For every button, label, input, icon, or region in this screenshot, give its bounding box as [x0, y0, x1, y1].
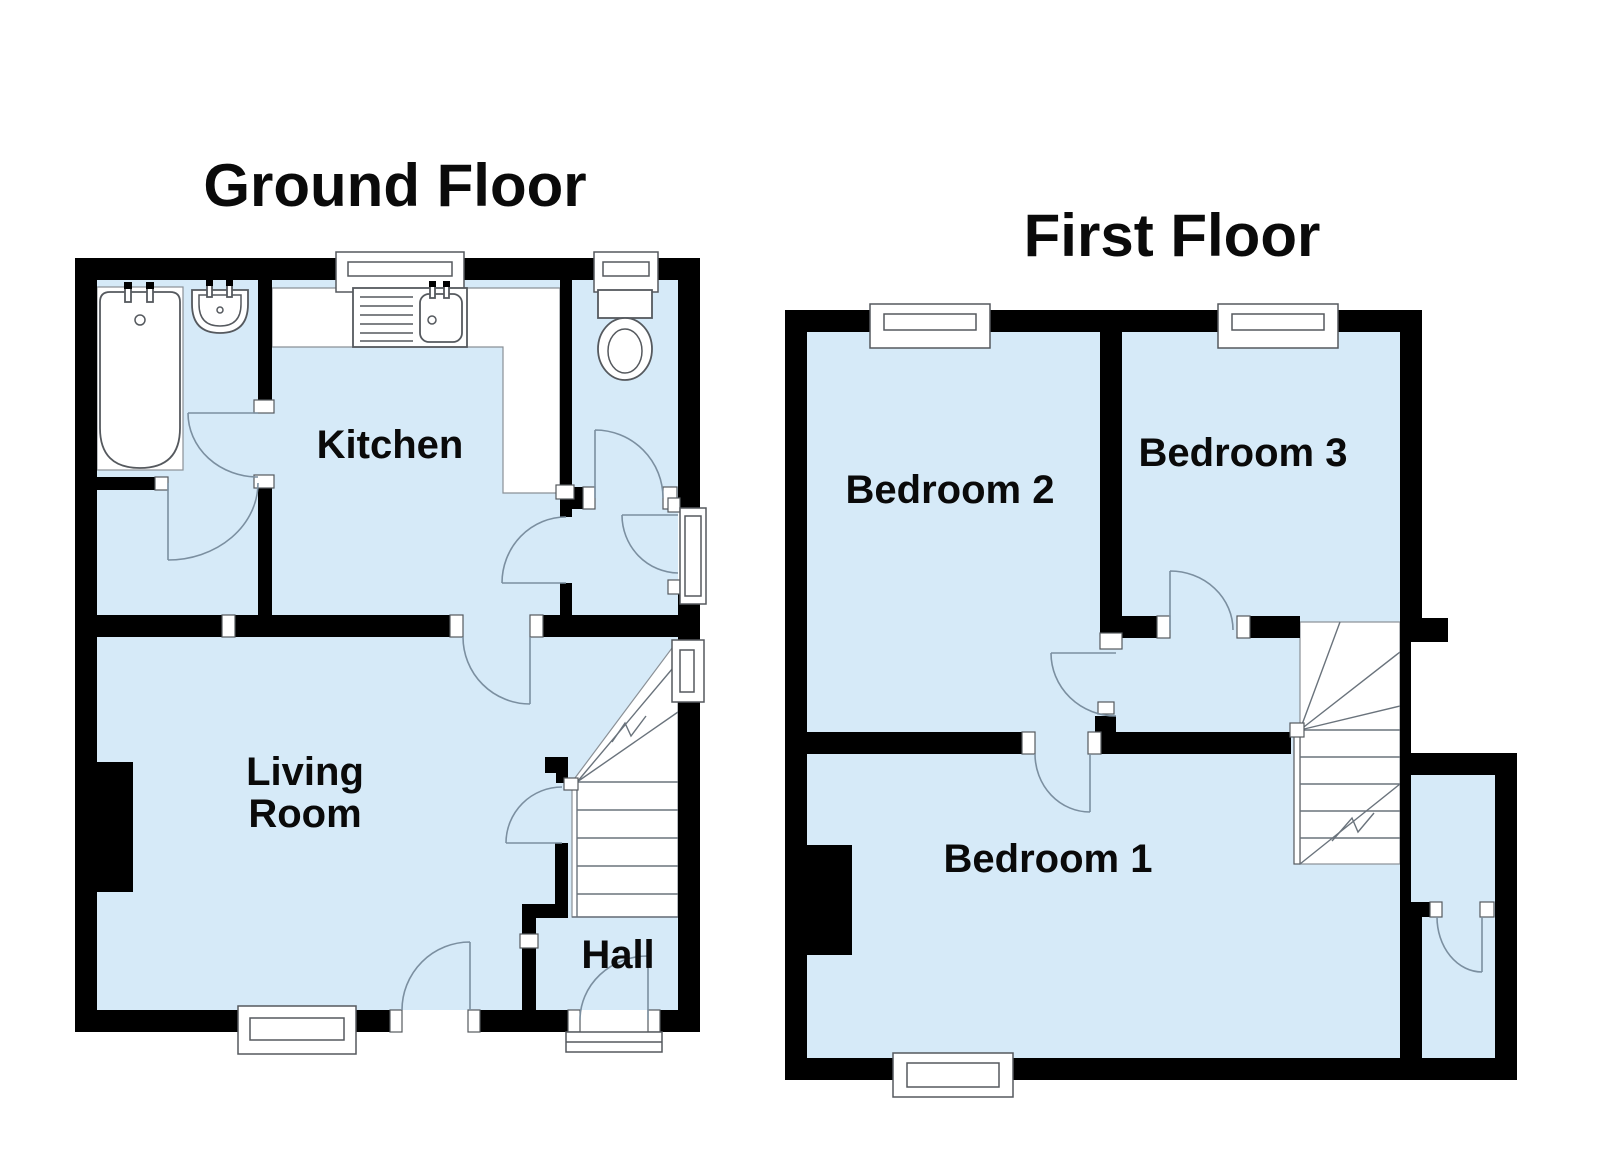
wc-window	[594, 252, 658, 292]
front-door-frame	[680, 508, 706, 604]
floorplan-svg: Ground Floor Kitchen Living Room Hall	[0, 0, 1600, 1163]
bedroom3-label: Bedroom 3	[1139, 431, 1348, 475]
living-room-label-line2: Room	[248, 792, 361, 836]
bedroom1-window	[893, 1053, 1013, 1097]
ground-floor-plan: Ground Floor Kitchen Living Room Hall	[75, 152, 706, 1054]
kitchen-sink-icon	[353, 281, 467, 347]
living-room-window	[238, 1006, 356, 1054]
hall-door-opening	[580, 1010, 648, 1032]
chimney-breast	[96, 762, 133, 892]
hall-label: Hall	[581, 933, 654, 977]
first-floor-title: First Floor	[1024, 202, 1321, 269]
bedroom1-label: Bedroom 1	[944, 837, 1153, 881]
back-door-opening	[402, 1010, 468, 1032]
bedroom2-label: Bedroom 2	[846, 468, 1055, 512]
hall-side-window	[672, 640, 704, 702]
bedroom3-window	[1218, 304, 1338, 348]
living-room-label-line1: Living	[246, 750, 364, 794]
chimney-breast	[806, 845, 852, 955]
bath-icon	[100, 282, 180, 468]
toilet-icon	[598, 290, 652, 380]
stairs-icon	[1294, 622, 1400, 864]
hall-threshold	[566, 1032, 662, 1052]
bedroom2-window	[870, 304, 990, 348]
first-floor-plan: First Floor Bedroom 2 Bedroom 3 Bedroom …	[785, 202, 1517, 1097]
kitchen-label: Kitchen	[317, 423, 464, 467]
ground-floor-title: Ground Floor	[203, 152, 586, 219]
floorplan-canvas: Ground Floor Kitchen Living Room Hall	[0, 0, 1600, 1163]
